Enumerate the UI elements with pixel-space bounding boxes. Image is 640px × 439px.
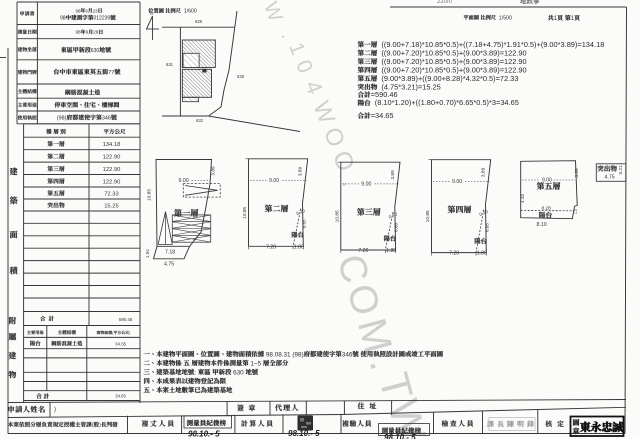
svg-text:0.70: 0.70 xyxy=(479,209,490,217)
svg-text:0.70: 0.70 xyxy=(296,208,307,216)
svg-text:122.90: 122.90 xyxy=(103,179,121,185)
svg-text:3.89: 3.89 xyxy=(298,167,304,177)
svg-text:W: W xyxy=(259,0,286,25)
svg-text:9.00: 9.00 xyxy=(179,178,189,184)
svg-text:1.80: 1.80 xyxy=(386,248,396,254)
svg-text:1.91: 1.91 xyxy=(145,249,151,259)
svg-text:=34.65: =34.65 xyxy=(371,111,394,120)
svg-text:98.10.- 5: 98.10.- 5 xyxy=(188,430,220,439)
svg-text:34.65: 34.65 xyxy=(115,394,126,399)
svg-text:N: N xyxy=(150,11,153,16)
svg-text:O: O xyxy=(338,280,387,320)
svg-text:98.10.- 5: 98.10.- 5 xyxy=(384,433,416,439)
svg-text:631: 631 xyxy=(166,62,174,67)
svg-text:1: 1 xyxy=(554,16,558,22)
svg-text:.: . xyxy=(276,28,299,41)
svg-text:1: 1 xyxy=(284,40,309,58)
svg-text:6.65: 6.65 xyxy=(394,222,399,231)
svg-text:7.20: 7.20 xyxy=(358,248,368,254)
svg-text:346: 346 xyxy=(102,116,111,122)
svg-text:(: ( xyxy=(92,423,94,429)
svg-text:(8.10*1.20)+((1.80+0.70)*6.65*: (8.10*1.20)+((1.80+0.70)*6.65*0.5)*3=34.… xyxy=(375,98,519,107)
svg-text:9.00: 9.00 xyxy=(269,178,279,184)
svg-text:(98): (98) xyxy=(292,351,303,358)
svg-text:628: 628 xyxy=(237,74,245,79)
svg-text:632: 632 xyxy=(196,118,204,123)
svg-text:(98): (98) xyxy=(57,116,67,122)
svg-text:98: 98 xyxy=(60,16,66,22)
svg-text:4: 4 xyxy=(300,77,328,97)
svg-text:8.10: 8.10 xyxy=(537,222,547,228)
svg-text:72.33: 72.33 xyxy=(104,191,119,197)
svg-text:): ) xyxy=(99,423,101,429)
svg-text:77: 77 xyxy=(108,70,114,76)
svg-text:012239: 012239 xyxy=(94,16,111,22)
svg-text:23: 23 xyxy=(93,8,98,13)
svg-text:8.28: 8.28 xyxy=(542,205,552,211)
svg-text:7.18: 7.18 xyxy=(165,249,175,255)
svg-text:98: 98 xyxy=(76,8,81,13)
svg-text:29: 29 xyxy=(93,30,99,35)
svg-text:9.00: 9.00 xyxy=(542,178,552,184)
svg-text:630: 630 xyxy=(91,48,100,54)
svg-text:134.18: 134.18 xyxy=(103,142,121,148)
svg-text:6.65: 6.65 xyxy=(484,223,489,232)
svg-text:4.75: 4.75 xyxy=(164,262,174,268)
svg-text:0.70: 0.70 xyxy=(388,211,399,219)
svg-text:98.10.- 5: 98.10.- 5 xyxy=(288,429,320,438)
svg-text:629: 629 xyxy=(195,19,203,24)
svg-text:98: 98 xyxy=(76,30,82,35)
svg-text:122.90: 122.90 xyxy=(103,167,121,173)
svg-text:4.32: 4.32 xyxy=(520,194,526,204)
svg-text:9.00: 9.00 xyxy=(361,181,371,187)
svg-text:(: ( xyxy=(112,330,114,335)
svg-text:4.75: 4.75 xyxy=(605,175,615,181)
svg-text:O: O xyxy=(318,124,350,151)
svg-text:9: 9 xyxy=(86,30,89,35)
svg-text:590.46: 590.46 xyxy=(119,317,133,322)
svg-text:10.85: 10.85 xyxy=(425,210,431,222)
svg-text:1/500: 1/500 xyxy=(499,15,512,21)
svg-text::: : xyxy=(194,369,196,376)
svg-text:O: O xyxy=(327,147,360,175)
svg-text:3.21: 3.21 xyxy=(618,165,624,175)
svg-text:630: 630 xyxy=(233,369,244,376)
svg-text:9: 9 xyxy=(85,8,88,13)
svg-text:220/0: 220/0 xyxy=(437,0,453,5)
svg-text:W: W xyxy=(308,97,340,127)
svg-text:1~5: 1~5 xyxy=(250,360,261,367)
svg-text:15.25: 15.25 xyxy=(104,203,119,209)
svg-text:7.20: 7.20 xyxy=(266,244,276,250)
svg-text:1: 1 xyxy=(571,16,575,22)
svg-text:34.65: 34.65 xyxy=(115,341,127,346)
svg-text:6.65: 6.65 xyxy=(301,219,306,228)
svg-text:98.08.31: 98.08.31 xyxy=(266,351,291,358)
svg-text:7.20: 7.20 xyxy=(449,251,459,257)
svg-text:3.89: 3.89 xyxy=(390,170,396,180)
svg-text:10.85: 10.85 xyxy=(334,210,340,222)
svg-text:3.89: 3.89 xyxy=(211,166,217,176)
svg-text:1/600: 1/600 xyxy=(184,9,197,15)
svg-text:): ) xyxy=(54,407,56,413)
svg-text:10.85: 10.85 xyxy=(147,189,153,201)
svg-text:): ) xyxy=(129,330,131,335)
svg-text:1.80: 1.80 xyxy=(477,251,487,257)
svg-text:9.00: 9.00 xyxy=(452,179,462,185)
svg-text:3.89: 3.89 xyxy=(481,167,487,177)
svg-text:0: 0 xyxy=(291,57,317,76)
svg-text:1.80: 1.80 xyxy=(294,244,304,250)
svg-text:10.85: 10.85 xyxy=(242,206,248,218)
svg-text:1.2: 1.2 xyxy=(574,209,578,214)
svg-text:346: 346 xyxy=(342,351,353,358)
svg-text:3.89: 3.89 xyxy=(574,168,580,178)
svg-text:122.90: 122.90 xyxy=(103,155,121,161)
